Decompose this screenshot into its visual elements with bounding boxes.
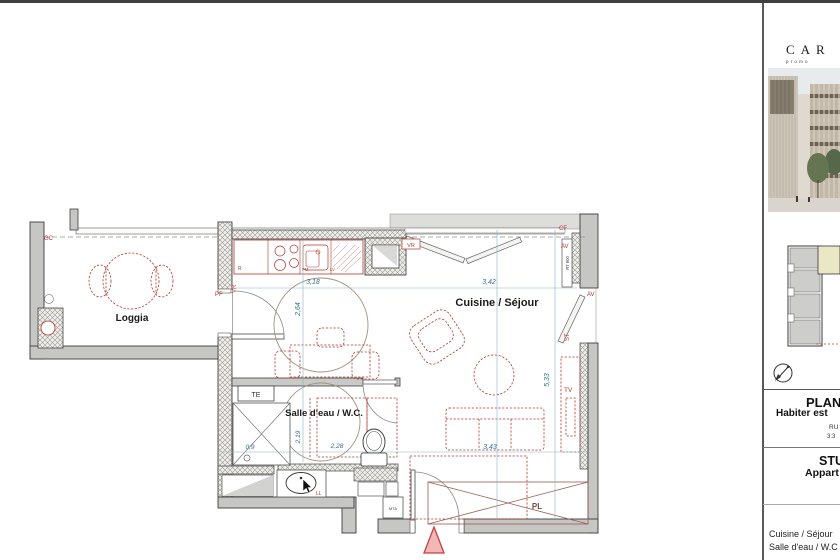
railing-post xyxy=(70,209,78,230)
sidebar-rule-2 xyxy=(763,447,840,448)
dim-bath-width: 2,28 xyxy=(330,443,344,450)
room-row-bathroom: Salle d'eau / W.C xyxy=(769,542,838,552)
building-photo xyxy=(768,68,840,212)
dim-sofa-width: 3,43 xyxy=(483,444,497,451)
bathroom-label: Salle d'eau / W.C. xyxy=(285,408,363,419)
sidebar-rule-1 xyxy=(763,389,840,390)
plan-viewer: GC Loggia xyxy=(0,0,840,560)
room-row-kitchen: Cuisine / Séjour xyxy=(769,529,833,539)
entry-door-swing xyxy=(415,472,459,519)
dim-kitchen-depth: 2,64 xyxy=(295,302,302,317)
toilet xyxy=(361,429,387,466)
entry-clearance xyxy=(410,456,527,519)
tv-cabinet xyxy=(561,357,580,452)
plan-ref-1: RU xyxy=(829,424,838,431)
casement-right xyxy=(466,237,522,263)
room-labels: Cuisine / Séjour Salle d'eau / W.C. xyxy=(285,297,539,419)
closet-pl: PL xyxy=(428,482,588,524)
kitchen-living-label: Cuisine / Séjour xyxy=(455,297,539,309)
te-label: TE xyxy=(252,392,261,399)
floor-plan: GC Loggia xyxy=(0,0,762,560)
vr-top-label: VR xyxy=(407,243,415,249)
loggia-drain xyxy=(41,321,55,335)
sidebar-rule-3 xyxy=(763,504,840,505)
dim-bath-depth: 2,19 xyxy=(295,430,302,444)
logo-tagline: promo xyxy=(786,59,831,64)
cf-label: CF xyxy=(559,226,567,232)
mta-label: MTA xyxy=(389,506,397,511)
av-right-label: AV xyxy=(587,292,595,298)
loggia-table-set xyxy=(89,253,173,309)
north-arrow-icon xyxy=(771,360,795,384)
armchair xyxy=(406,306,469,368)
sidebar-divider xyxy=(762,3,764,560)
fridge-label: R xyxy=(238,266,242,272)
radiator-label: RT 900 xyxy=(565,256,570,270)
unit-label: Appart xyxy=(805,467,839,479)
dim-shower-width: 0,9 xyxy=(245,444,254,451)
pl-label: PL xyxy=(532,502,542,511)
vr-side-label: VR xyxy=(232,284,238,293)
logo-text: CAR xyxy=(786,42,831,58)
bath-door-leaf xyxy=(363,380,397,384)
coffee-table xyxy=(474,355,514,395)
loggia-light xyxy=(45,295,54,304)
dim-living-depth: 5,33 xyxy=(544,373,551,387)
dim-kitchen-width: 3,18 xyxy=(306,279,320,286)
loggia-label: Loggia xyxy=(116,313,149,324)
entry-door-leaf xyxy=(411,470,415,520)
av-top-label: AV xyxy=(561,244,569,250)
entrance-marker xyxy=(424,527,444,553)
kitchen-counter: R PM LV xyxy=(234,240,363,274)
bathroom-partition xyxy=(232,378,363,386)
pf-label: PF xyxy=(215,292,223,298)
unit-type: STU xyxy=(819,454,840,468)
developer-logo: CAR promo xyxy=(786,42,831,64)
unit-highlight xyxy=(818,246,840,274)
bath-door-swing xyxy=(363,384,397,423)
gc-label: GC xyxy=(44,236,54,242)
dim-living-width: 3,42 xyxy=(482,279,496,286)
plan-ref-2: 3:3 xyxy=(827,434,835,440)
pf-door-swing xyxy=(236,291,284,336)
key-plan xyxy=(770,240,840,352)
tv-label: TV xyxy=(564,387,573,394)
st-label: ST xyxy=(565,333,571,341)
plan-subtitle: Habiter est xyxy=(776,408,828,419)
shower xyxy=(233,403,290,465)
window-sill xyxy=(405,228,565,233)
dishwasher-label: LV xyxy=(330,267,335,272)
st-casement xyxy=(558,295,585,343)
ll-label: LL xyxy=(316,491,322,497)
